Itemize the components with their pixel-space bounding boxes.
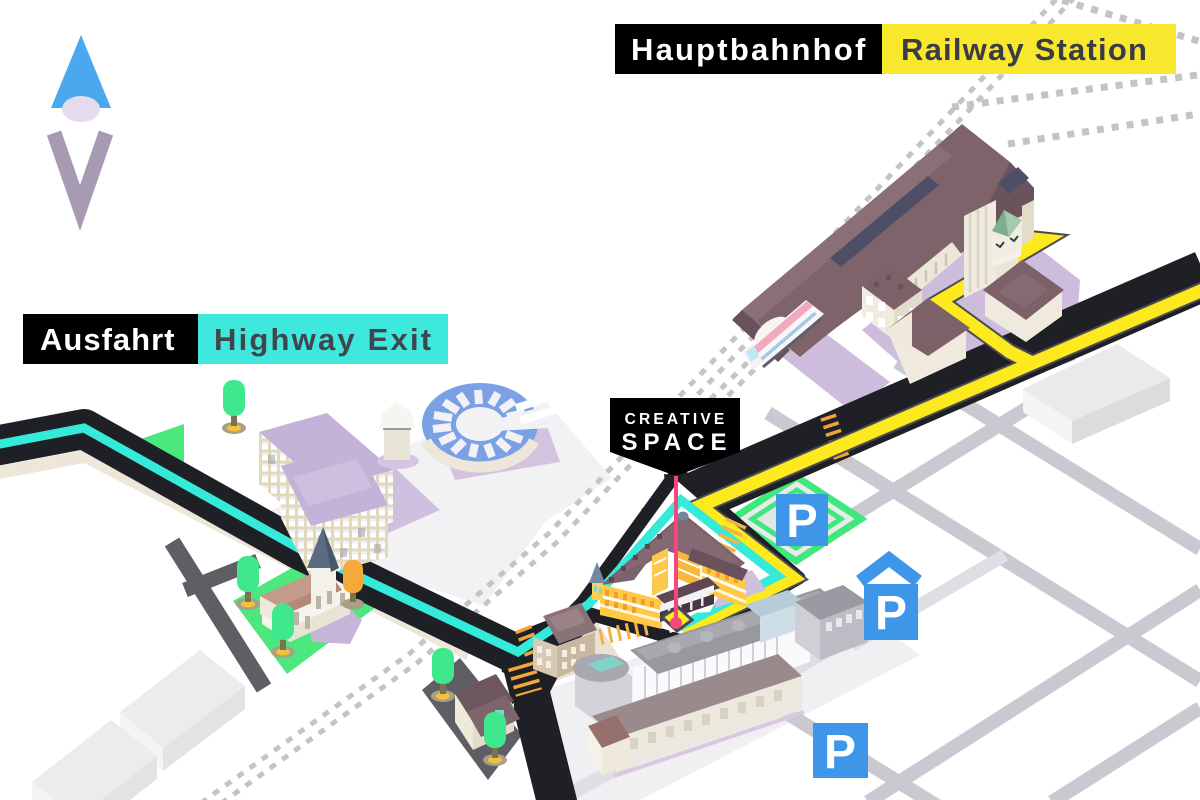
svg-text:P: P bbox=[875, 587, 907, 640]
svg-text:SPACE: SPACE bbox=[622, 429, 733, 456]
svg-text:CREATIVE: CREATIVE bbox=[625, 411, 728, 428]
svg-text:P: P bbox=[824, 726, 856, 779]
svg-text:Highway Exit: Highway Exit bbox=[214, 322, 433, 357]
svg-text:Railway Station: Railway Station bbox=[901, 32, 1148, 67]
svg-text:P: P bbox=[786, 494, 817, 547]
svg-text:Ausfahrt: Ausfahrt bbox=[40, 322, 175, 357]
svg-text:Hauptbahnhof: Hauptbahnhof bbox=[631, 32, 867, 67]
